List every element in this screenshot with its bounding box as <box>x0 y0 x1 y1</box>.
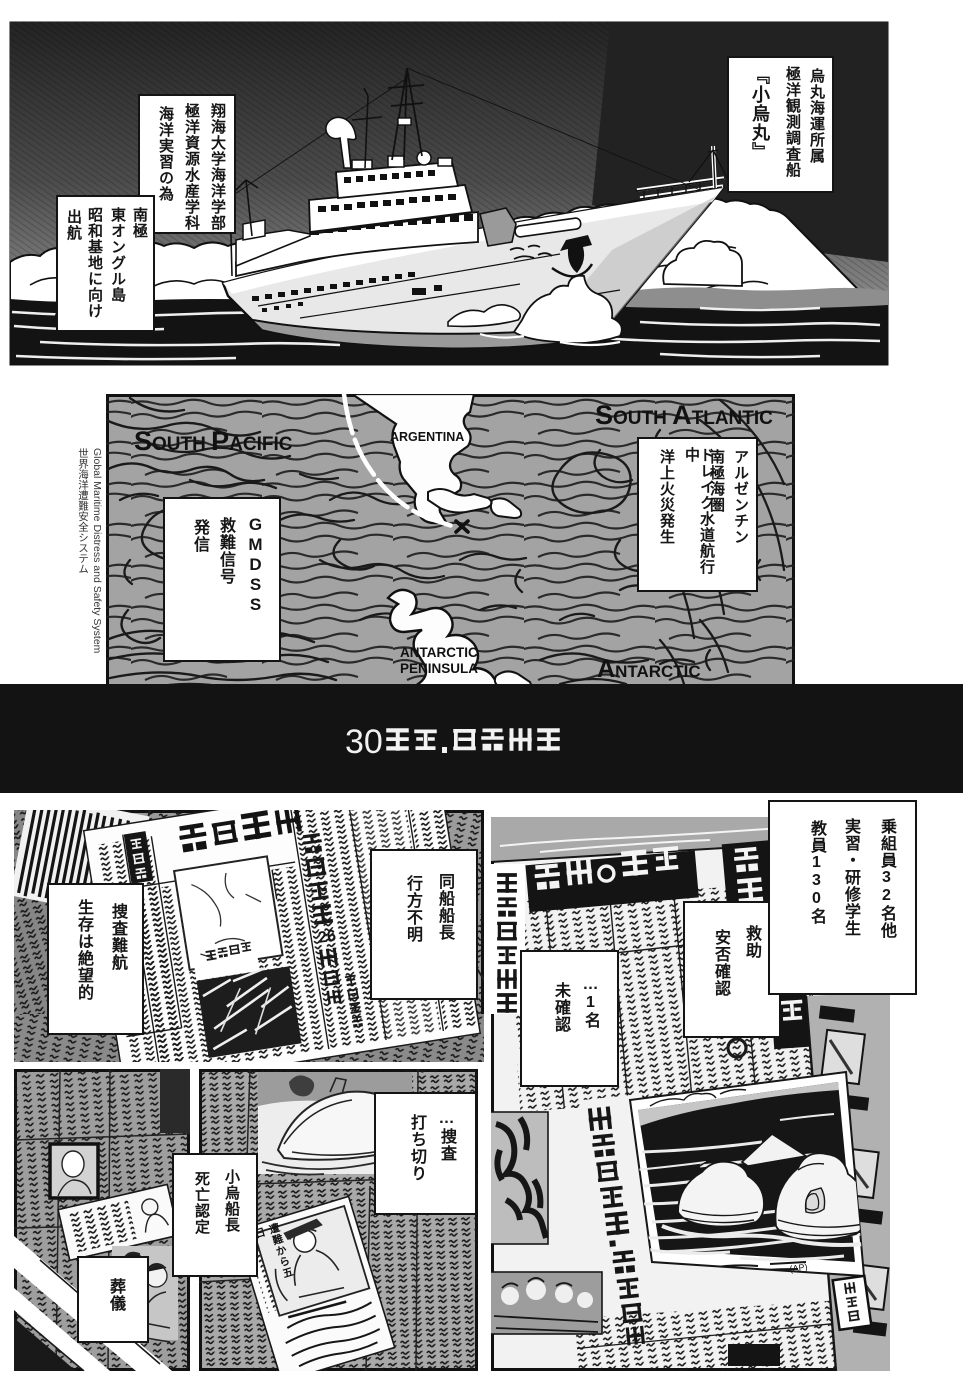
svg-text:30: 30 <box>345 723 383 761</box>
